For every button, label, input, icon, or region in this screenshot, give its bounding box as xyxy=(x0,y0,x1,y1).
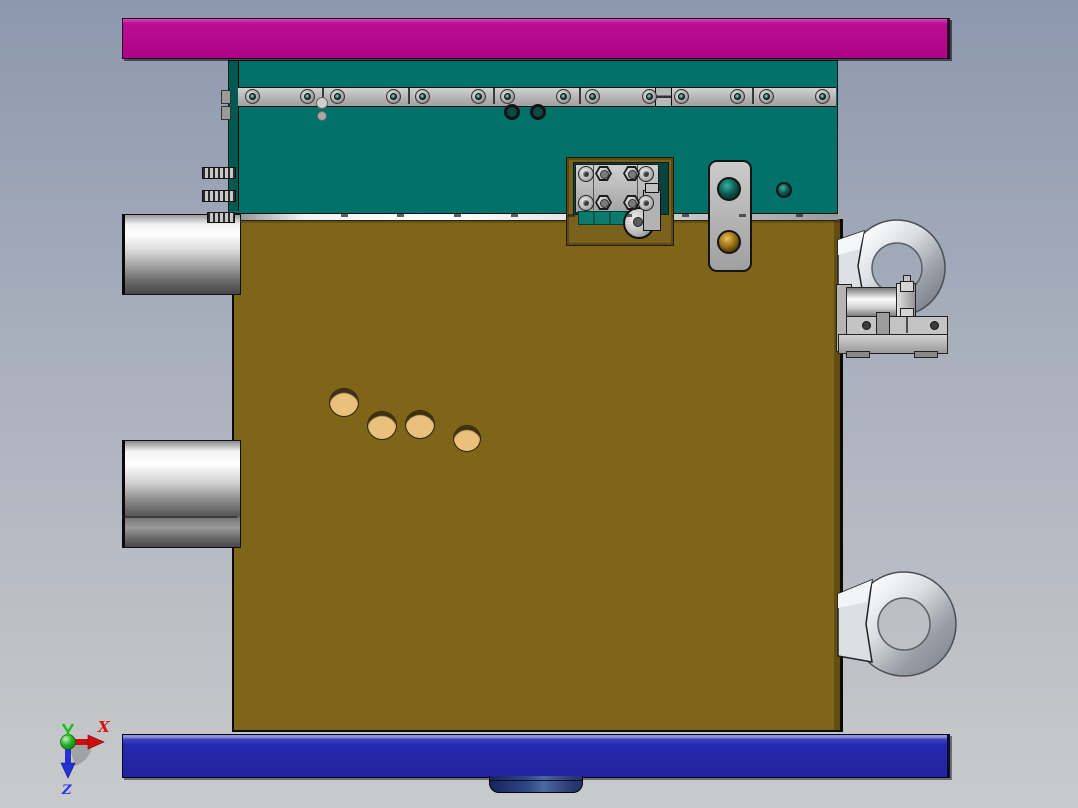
edge-tab xyxy=(221,106,231,120)
rail-divider xyxy=(579,88,581,104)
socket-screw[interactable] xyxy=(638,195,654,211)
threaded-fitting[interactable] xyxy=(202,167,236,179)
rail-divider xyxy=(493,88,495,104)
rail-joint xyxy=(906,317,908,333)
rail-dot xyxy=(316,97,328,109)
socket-screw[interactable] xyxy=(638,166,654,182)
ejector-pin-hole[interactable] xyxy=(453,425,481,452)
parting-tick xyxy=(796,214,803,217)
rail-screw[interactable] xyxy=(330,89,345,104)
rail-screw[interactable] xyxy=(674,89,689,104)
parting-tick xyxy=(568,214,575,217)
socket-screw[interactable] xyxy=(578,166,594,182)
parting-tick xyxy=(511,214,518,217)
base-foot xyxy=(914,351,938,358)
socket-screw[interactable] xyxy=(578,195,594,211)
cam-tab xyxy=(645,183,659,193)
y-axis-ball xyxy=(61,735,76,750)
ejector-pin-hole[interactable] xyxy=(329,388,359,417)
cad-viewport: X Z xyxy=(0,0,1078,808)
rail-screw[interactable] xyxy=(500,89,515,104)
base-screw[interactable] xyxy=(930,321,939,330)
rail-screw[interactable] xyxy=(300,89,315,104)
parting-tick xyxy=(739,214,746,217)
rail-screw[interactable] xyxy=(759,89,774,104)
rail-screw[interactable] xyxy=(815,89,830,104)
edge-tab xyxy=(221,90,231,104)
flange-bolt[interactable] xyxy=(900,281,914,292)
hex-nut[interactable] xyxy=(595,195,612,210)
parting-tick xyxy=(682,214,689,217)
parting-tick xyxy=(625,214,632,217)
rail-screw[interactable] xyxy=(642,89,657,104)
rail-divider xyxy=(752,88,754,104)
socket-ring[interactable] xyxy=(530,104,546,120)
locating-ring[interactable] xyxy=(489,776,583,793)
socket-ring[interactable] xyxy=(504,104,520,120)
rail-screw[interactable] xyxy=(386,89,401,104)
rail-block xyxy=(655,87,672,107)
x-axis-label: X xyxy=(97,718,111,736)
hex-nut[interactable] xyxy=(595,166,612,181)
hex-nut[interactable] xyxy=(623,195,640,210)
cylinder-seam xyxy=(122,516,237,518)
parting-tick xyxy=(397,214,404,217)
ejector-pin-hole[interactable] xyxy=(367,411,397,440)
ejector-pin-hole[interactable] xyxy=(405,410,435,439)
base-screw[interactable] xyxy=(862,321,871,330)
top-clamp-plate[interactable] xyxy=(122,18,950,59)
z-axis-label: Z xyxy=(61,783,72,798)
bottom-clamp-plate[interactable] xyxy=(122,734,950,778)
base-foot xyxy=(846,351,870,358)
rail-screw[interactable] xyxy=(471,89,486,104)
x-axis-arrowhead xyxy=(88,735,104,749)
rail-screw[interactable] xyxy=(585,89,600,104)
rail-screw[interactable] xyxy=(730,89,745,104)
cavity-hole[interactable] xyxy=(776,182,792,198)
rail-screw[interactable] xyxy=(415,89,430,104)
latch-hole-teal[interactable] xyxy=(717,177,741,201)
y-axis-glyph xyxy=(63,724,73,736)
rail-dot xyxy=(317,111,327,121)
core-plate[interactable] xyxy=(232,219,843,732)
threaded-fitting[interactable] xyxy=(202,190,236,202)
rail-divider xyxy=(408,88,410,104)
parting-tick xyxy=(454,214,461,217)
guide-cylinder-upper[interactable] xyxy=(122,214,241,295)
eyebolt-bottom-shank[interactable] xyxy=(830,570,878,670)
rail-screw[interactable] xyxy=(245,89,260,104)
guide-cylinder-lower[interactable] xyxy=(122,440,241,548)
cam-bolt[interactable] xyxy=(633,217,643,227)
z-axis-arrowhead xyxy=(61,763,75,778)
parting-tick xyxy=(341,214,348,217)
threaded-fitting[interactable] xyxy=(207,212,235,223)
rail-screw[interactable] xyxy=(556,89,571,104)
orientation-triad: X Z xyxy=(46,712,130,808)
cavity-plate-edge xyxy=(229,61,239,211)
hex-nut[interactable] xyxy=(623,166,640,181)
latch-hole-gold[interactable] xyxy=(717,230,741,254)
